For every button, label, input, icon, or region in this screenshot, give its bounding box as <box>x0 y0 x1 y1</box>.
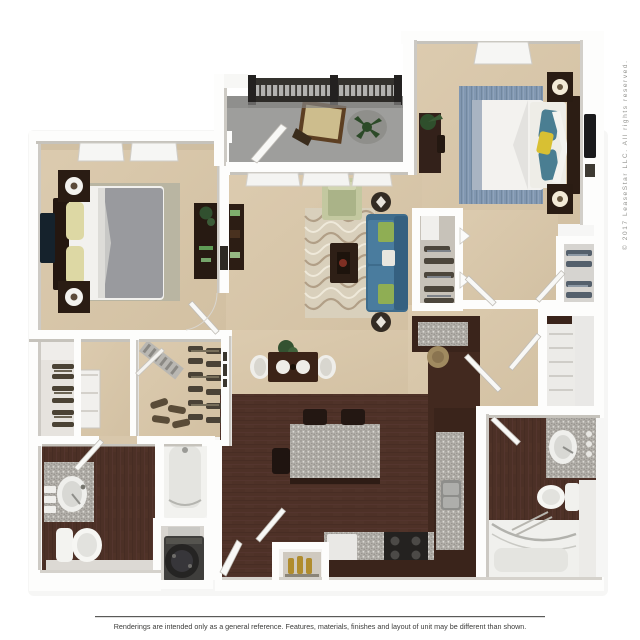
svg-text:Renderings are intended only a: Renderings are intended only as a genera… <box>114 622 527 631</box>
svg-text:© 2017 LeaseStar LLC. All righ: © 2017 LeaseStar LLC. All rights reserve… <box>621 60 629 251</box>
